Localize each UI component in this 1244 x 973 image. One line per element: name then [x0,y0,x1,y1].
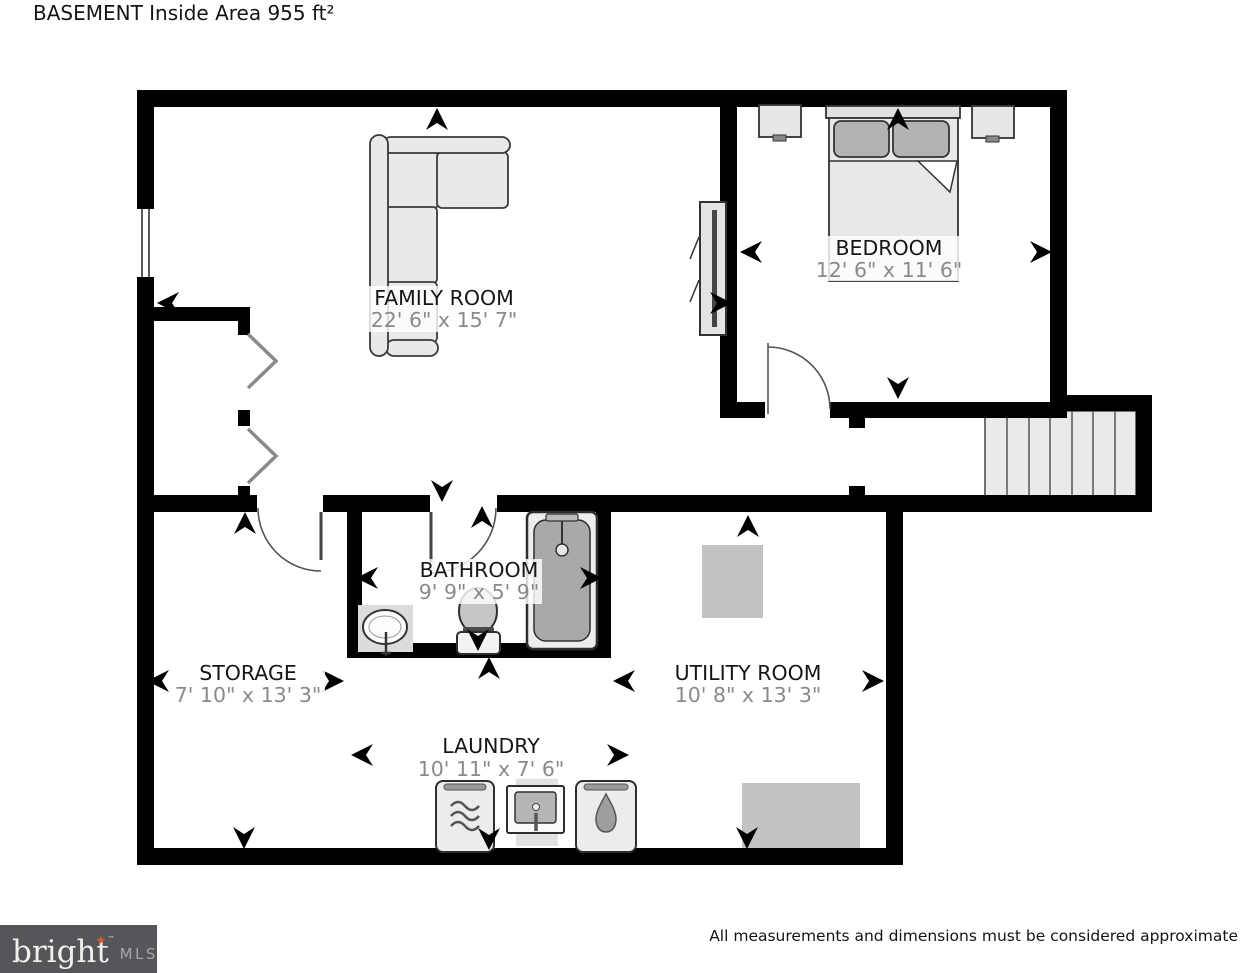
stairs [985,411,1136,496]
window-opening [137,209,154,277]
bifold-door [248,334,276,388]
pillow [893,121,949,157]
washer [576,781,636,852]
wall [238,486,250,512]
wall [137,90,1067,107]
laundry-dimensions: 10' 11" x 7' 6" [418,757,565,781]
storage-dimensions: 7' 10" x 13' 3" [175,683,322,707]
bedroom-label: BEDROOM [835,236,942,260]
arrow-up-icon [426,108,448,130]
tub-faucet [546,514,578,521]
utility-room-dimensions: 10' 8" x 13' 3" [675,683,822,707]
floorplan-drawing: FAMILY ROOM 22' 6" x 15' 7" BEDROOM 12' … [0,0,1244,973]
arrow-left-icon [351,744,373,766]
wall [137,90,154,865]
nightstand-right [972,106,1014,142]
logo-mls-text: MLS [120,945,158,973]
utility-sink [507,778,564,846]
vanity-sink [358,605,413,656]
arrow-right-icon [607,744,629,766]
arrow-up-icon [478,657,500,679]
arrow-left-icon [613,670,635,692]
family-room-label: FAMILY ROOM [374,286,514,310]
wall [137,307,250,321]
arrow-down-icon [887,377,909,399]
wall [238,410,250,426]
wall [849,402,865,428]
bathroom-dimensions: 9' 9" x 5' 9" [419,580,540,604]
window [137,209,154,277]
bedroom-door [768,343,830,414]
headboard [826,106,960,118]
arrow-up-icon [234,512,256,534]
storage-door [258,508,321,571]
pillow [834,121,889,157]
storage-label: STORAGE [199,661,297,685]
wall [886,495,903,865]
arrow-up-icon [737,515,759,537]
wall [497,495,1152,512]
laundry-label: LAUNDRY [442,734,540,758]
bedroom-dimensions: 12' 6" x 11' 6" [816,258,963,282]
furnace [702,545,763,618]
brightmls-logo: bright✦™MLS [0,925,157,973]
disclaimer-text: All measurements and dimensions must be … [709,927,1238,945]
wall [238,307,250,335]
arrow-up-icon [471,506,493,528]
wall [1136,395,1152,512]
arrow-right-icon [322,670,344,692]
family-room-dimensions: 22' 6" x 15' 7" [371,308,518,332]
closet-bifold-doors [248,334,276,483]
wall [849,486,865,512]
wall [720,402,765,418]
star-icon: ✦ [95,933,107,973]
utility-room-label: UTILITY ROOM [675,661,822,685]
bifold-door [248,429,276,483]
tub-drain [556,544,568,556]
bathroom-label: BATHROOM [420,558,539,582]
wall [830,402,1067,418]
nightstand-left [759,105,801,141]
arrow-right-icon [1030,241,1052,263]
wall [323,495,430,512]
wall [137,848,903,865]
trademark-symbol: ™ [108,935,115,973]
floorplan-page: { "title": "BASEMENT Inside Area 955 ft²… [0,0,1244,973]
tv-unit [690,202,726,335]
equipment-pad [742,783,860,848]
arrow-down-icon [431,480,453,502]
arrow-down-icon [233,827,255,849]
arrow-left-icon [740,241,762,263]
arrow-right-icon [862,670,884,692]
wall [1050,90,1067,412]
